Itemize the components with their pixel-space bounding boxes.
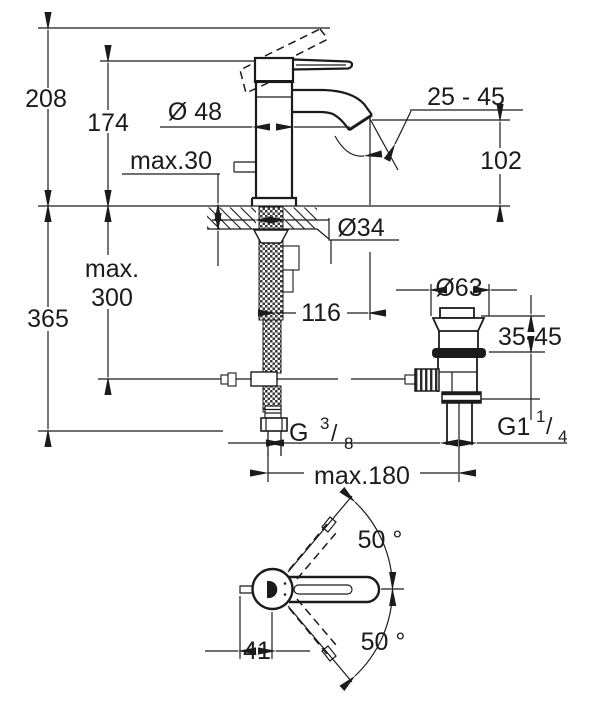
mounting-bracket-upper — [283, 246, 299, 270]
dim-body-height: 174 — [87, 109, 129, 137]
supply-thread-numerator: 3 — [320, 414, 329, 433]
lever-plan-outline — [289, 577, 379, 602]
rod-fitting-small — [221, 375, 228, 384]
dim-overall-depth: 365 — [27, 305, 69, 333]
waste-flange — [433, 318, 484, 331]
handle-cap — [255, 58, 293, 82]
dim-hose-depth-2: 300 — [91, 284, 133, 312]
swing-reference-lines — [288, 496, 352, 682]
dim-hole-diameter: Ø34 — [337, 214, 384, 242]
dim-hose-depth-1: max. — [85, 255, 139, 283]
waste-thread-numerator: 1 — [536, 407, 545, 426]
dim-clamping-range: 35-45 — [498, 323, 562, 351]
rod-tee — [251, 372, 277, 386]
supply-thread-base: G — [289, 419, 308, 447]
dim-swing-upper: 50 ° — [358, 526, 403, 554]
faucet-front-view — [234, 29, 372, 206]
supply-thread-slash: / — [331, 420, 338, 446]
dim-aerator-angle: 25 - 45 — [427, 83, 505, 111]
technical-drawing-canvas: 208 174 Ø 48 max.30 25 - 45 102 Ø34 max.… — [0, 0, 600, 719]
dim-spout-height: 102 — [480, 147, 522, 175]
deck-hatch-right — [284, 208, 317, 229]
waste-body — [438, 358, 477, 392]
dim-swing-lower: 50 ° — [361, 628, 406, 656]
lever-dashed-lower — [289, 599, 336, 654]
rod-fitting-large — [228, 373, 236, 386]
rod-guide-tab — [234, 162, 256, 172]
aerator-angle-line — [370, 119, 398, 170]
supply-thread-denominator: 8 — [344, 434, 353, 453]
supply-nut — [261, 418, 287, 431]
lever-plan-slot — [294, 585, 352, 594]
dim-body-diameter: Ø 48 — [168, 98, 222, 126]
installation-drawing: 208 174 Ø 48 max.30 25 - 45 102 Ø34 max.… — [0, 0, 600, 719]
dim-handle-offset: 41 — [243, 637, 271, 665]
pop-up-waste — [405, 308, 486, 445]
lever-dashed-upper — [289, 524, 336, 579]
waste-thread-denominator: 4 — [558, 427, 567, 446]
hose-collar — [265, 406, 281, 418]
mounting-bracket-lower — [283, 270, 293, 292]
spout-outlet-face — [349, 115, 372, 130]
dim-waste-diameter: Ø63 — [435, 274, 482, 302]
waste-o-ring — [432, 348, 486, 358]
waste-plug-top — [440, 308, 474, 318]
aerator-leader-arrow — [395, 111, 411, 144]
waste-thread-slash: / — [546, 413, 553, 439]
aerator-swivel-arrow — [335, 136, 364, 156]
deck-hatch-left — [207, 208, 256, 229]
dim-deck-thickness: max.30 — [130, 147, 212, 175]
aerator-stub — [240, 586, 252, 593]
rod-adjuster-knob — [415, 369, 439, 391]
dim-spout-reach: 116 — [301, 299, 341, 327]
dim-center-distance: max.180 — [314, 462, 410, 490]
faucet-body — [256, 82, 292, 198]
rod-knob-stem — [405, 375, 415, 384]
supply-tail — [268, 431, 281, 456]
dim-total-height: 208 — [25, 85, 67, 113]
faucet-base — [252, 198, 296, 206]
waste-thread-base: G1 — [497, 413, 530, 441]
